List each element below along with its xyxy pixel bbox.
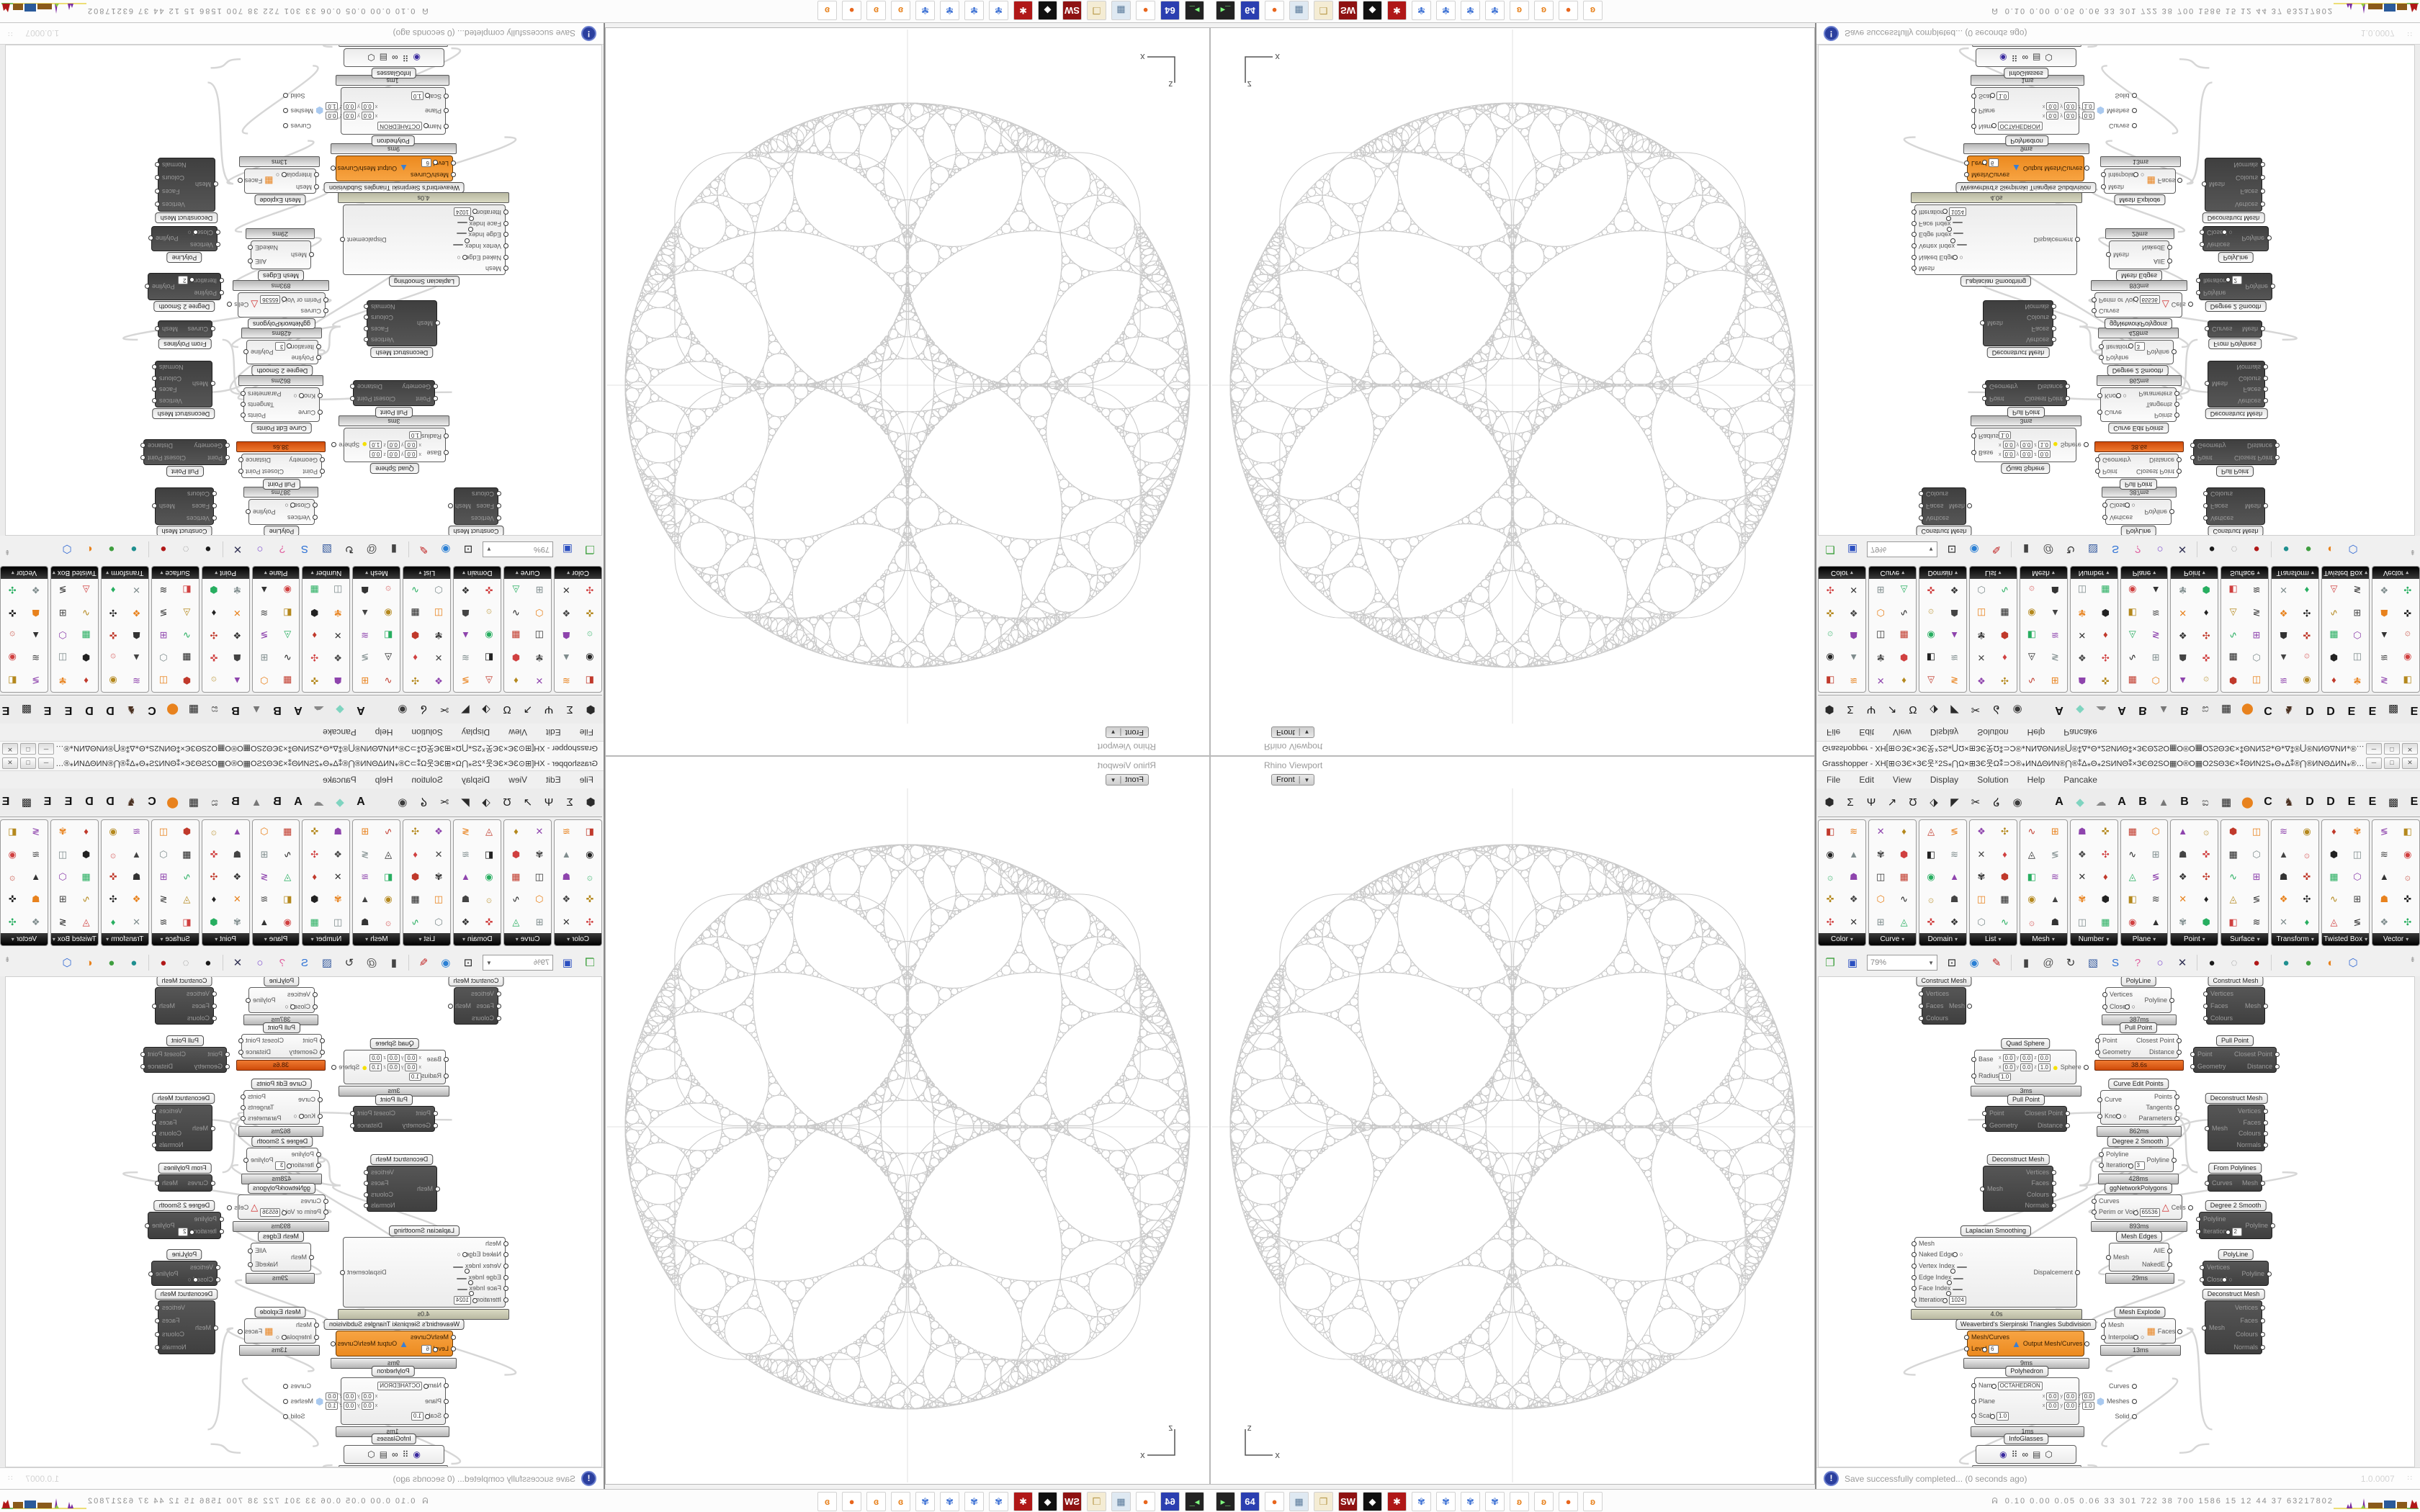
- component-icon[interactable]: ✕: [1850, 917, 1857, 927]
- output-pin-polyline[interactable]: Polyline: [156, 1270, 179, 1277]
- terminal-icon[interactable]: ▸_: [1216, 1, 1235, 20]
- component-icon[interactable]: ✣: [2202, 631, 2210, 640]
- sketch-icon[interactable]: ▮: [2018, 541, 2034, 557]
- output-pin-faces[interactable]: Faces: [2031, 1179, 2049, 1187]
- component-icon[interactable]: ◫: [2252, 827, 2261, 836]
- mesh-tab-icon[interactable]: ◤: [460, 796, 471, 809]
- output-pin-distance[interactable]: Distance: [148, 1063, 173, 1070]
- menu-view[interactable]: View: [1893, 727, 1912, 737]
- blender-icon[interactable]: ʚ: [817, 1, 837, 20]
- component-mesh-edges[interactable]: Mesh AllENakedE: [2109, 240, 2169, 269]
- component-icon[interactable]: ∿: [2001, 917, 2009, 927]
- component-icon[interactable]: ∿: [2330, 608, 2338, 618]
- output-pin-normals[interactable]: Normals: [159, 364, 184, 371]
- param-value-box[interactable]: 3: [2135, 1161, 2145, 1170]
- mesh-tab-icon[interactable]: ◤: [1949, 703, 1960, 716]
- firefox-icon[interactable]: ●: [1265, 1, 1284, 20]
- palette-label[interactable]: Number▾: [2071, 567, 2117, 579]
- component-icon[interactable]: ☗: [1950, 608, 1959, 618]
- curve-tab-icon[interactable]: Ʊ: [501, 796, 513, 809]
- component-icon[interactable]: ✜: [1827, 894, 1834, 904]
- input-pin-mesh[interactable]: Mesh: [485, 1240, 501, 1247]
- component-pull-point[interactable]: Point Geometry Closest PointDistance: [2193, 1047, 2277, 1073]
- component-icon[interactable]: ⬢: [183, 827, 191, 836]
- boolean-toggle-icon[interactable]: ○: [457, 254, 460, 261]
- component-icon[interactable]: ۞: [2203, 676, 2209, 685]
- component-deconstruct-mesh[interactable]: Mesh VerticesFacesColoursNormals: [2205, 158, 2262, 212]
- component-icon[interactable]: ◉: [485, 872, 493, 881]
- blender-icon[interactable]: ʚ: [866, 1492, 886, 1511]
- palette-label[interactable]: Number▾: [302, 933, 349, 945]
- grasshopper-canvas[interactable]: Construct MeshVertices Faces Colours Mes…: [4, 976, 602, 1467]
- output-pin-mesh[interactable]: Mesh: [159, 503, 175, 510]
- chevron-down-icon[interactable]: ▾: [567, 936, 570, 942]
- output-pin-vertices[interactable]: Vertices: [2026, 1169, 2049, 1176]
- tab-letter-E[interactable]: E: [2367, 796, 2378, 809]
- component-pull-point[interactable]: Point Geometry Closest PointDistance: [241, 1034, 322, 1058]
- statusbar-grip[interactable]: ∷: [2408, 30, 2413, 37]
- gem-tab-icon[interactable]: ◆: [334, 703, 346, 716]
- rhino-viewport[interactable]: Rhino Viewport Front | ▼ z x: [605, 27, 1210, 756]
- close-button[interactable]: ✕: [2, 743, 18, 755]
- input-pin-curve[interactable]: Curve: [298, 1096, 315, 1103]
- component-icon[interactable]: ☗: [32, 608, 40, 618]
- component-icon[interactable]: ◫: [2078, 585, 2087, 595]
- component-icon[interactable]: ◉: [2403, 653, 2411, 662]
- component-icon[interactable]: ◫: [434, 894, 443, 904]
- maximize-button[interactable]: □: [20, 757, 36, 769]
- chevron-down-icon[interactable]: ▾: [1901, 570, 1904, 576]
- output-pin-output-mesh-curves[interactable]: Output Mesh/Curves: [338, 1340, 398, 1347]
- component-icon[interactable]: ◬: [83, 917, 90, 927]
- component-icon[interactable]: ❖: [333, 850, 342, 859]
- component-icon[interactable]: ۞: [2029, 585, 2035, 595]
- component-icon[interactable]: ✾: [233, 917, 241, 927]
- output-pin-curves[interactable]: Curves: [290, 1382, 311, 1390]
- dna-icon[interactable]: ✕: [2174, 955, 2190, 971]
- component-icon[interactable]: ✾: [334, 608, 342, 618]
- component-icon[interactable]: ⊞: [1877, 917, 1885, 927]
- component-icon[interactable]: ⊞: [2051, 827, 2059, 836]
- viewport-tab-front[interactable]: Front | ▼: [1106, 726, 1149, 738]
- component-icon[interactable]: ◉: [1827, 850, 1834, 859]
- input-pin-face-index[interactable]: Face Index: [1919, 220, 1963, 228]
- xyz-value-box[interactable]: 1.0: [2082, 102, 2094, 110]
- component-icon[interactable]: ◉: [2027, 894, 2035, 904]
- component-icon[interactable]: ◉: [9, 850, 17, 859]
- output-pin-points[interactable]: Points: [248, 412, 266, 419]
- component-icon[interactable]: ۞: [110, 653, 116, 662]
- input-pin-polyline[interactable]: Polyline: [194, 290, 217, 297]
- component-icon[interactable]: ⬡: [1977, 585, 1985, 595]
- component-icon[interactable]: ☗: [562, 631, 570, 640]
- component-icon[interactable]: ✜: [2202, 653, 2210, 662]
- blender-icon[interactable]: ʚ: [866, 1, 886, 20]
- component-laplacian-smoothing[interactable]: Mesh Naked Edges ○Vertex Index Edge Inde…: [343, 1237, 506, 1308]
- component-icon[interactable]: ♦: [2103, 631, 2108, 640]
- param-value-box[interactable]: 1.0: [1996, 1412, 2009, 1421]
- chevron-down-icon[interactable]: ▾: [2406, 570, 2408, 576]
- component-weaverbird-s-sierpinski-triangles-subdivision[interactable]: Mesh/Curves Level 6▲Output Mesh/Curves: [336, 156, 453, 181]
- paint-icon[interactable]: ✾: [915, 1, 935, 20]
- output-pin-normals[interactable]: Normals: [162, 1344, 187, 1351]
- component-icon[interactable]: ✜: [310, 676, 318, 685]
- chevron-down-icon[interactable]: ▾: [1999, 936, 2002, 942]
- blob-outline-icon[interactable]: ⬡: [59, 955, 75, 971]
- component-icon[interactable]: ◧: [8, 676, 17, 685]
- boolean-toggle-icon[interactable]: ○: [2229, 1276, 2233, 1283]
- boolean-toggle-icon[interactable]: ○: [2141, 1333, 2144, 1341]
- screenshot-icon[interactable]: ▧: [319, 955, 335, 971]
- component-infoglasses[interactable]: ◉⠿∞▤⬡: [344, 48, 444, 67]
- chevron-down-icon[interactable]: ▼: [1304, 729, 1310, 736]
- component-icon[interactable]: ❖: [1850, 608, 1858, 618]
- component-icon[interactable]: ▲: [259, 585, 269, 595]
- component-icon[interactable]: ∿: [82, 608, 90, 618]
- input-pin-level[interactable]: Level 6: [1971, 158, 1999, 167]
- component-icon[interactable]: ◫: [58, 653, 67, 662]
- output-pin-sphere[interactable]: Sphere: [2061, 1063, 2081, 1071]
- paint-icon[interactable]: ✾: [915, 1492, 935, 1511]
- firefox-icon[interactable]: ●: [1136, 1, 1155, 20]
- input-pin-scale[interactable]: Scale 1.0: [1978, 91, 2009, 100]
- chevron-down-icon[interactable]: ▾: [12, 570, 14, 576]
- input-pin-radius[interactable]: Radius: [1978, 433, 1999, 441]
- component-icon[interactable]: ◫: [159, 676, 168, 685]
- input-pin-scale[interactable]: Scale 1.0: [1978, 1412, 2009, 1421]
- component-icon[interactable]: ♦: [84, 676, 89, 685]
- component-icon[interactable]: ✕: [563, 917, 570, 927]
- xyz-value-box[interactable]: 0.0: [326, 1392, 338, 1400]
- badge-icon[interactable]: ✱: [1013, 1492, 1033, 1511]
- toolbar-overflow-icon[interactable]: ⇟: [4, 548, 10, 556]
- component-icon[interactable]: ▲: [562, 653, 571, 662]
- firefox-icon[interactable]: ●: [1136, 1492, 1155, 1511]
- input-pin-faces[interactable]: Faces: [1926, 1002, 1944, 1009]
- component-icon[interactable]: ◬: [183, 608, 190, 618]
- input-pin-point[interactable]: Point: [416, 396, 431, 403]
- xyz-value-box[interactable]: 0.0: [2064, 1402, 2076, 1410]
- vector-tab-icon[interactable]: ↗: [1886, 796, 1898, 809]
- component-icon[interactable]: ≋: [2152, 894, 2160, 904]
- component-icon[interactable]: ✣: [2001, 827, 2009, 836]
- component-icon[interactable]: ❖: [562, 608, 570, 618]
- output-pin-faces[interactable]: Faces: [371, 1179, 389, 1187]
- maximize-button[interactable]: □: [2384, 743, 2400, 755]
- component-icon[interactable]: ≋: [2380, 850, 2388, 859]
- xyz-value-box[interactable]: 0.0: [362, 112, 374, 120]
- component-icon[interactable]: ▦: [411, 894, 419, 904]
- component-polyhedron[interactable]: Name OCTAHEDRONPlane Scale 1.0x0.0y0.0z0…: [341, 87, 446, 135]
- output-pin-closest-point[interactable]: Closest Point: [246, 468, 284, 475]
- param-value-box[interactable]: 1.0: [411, 91, 423, 100]
- param-value-box[interactable]: OCTAHEDRON: [377, 1382, 422, 1390]
- input-pin-closed[interactable]: Closed ○: [2207, 229, 2233, 236]
- component-icon[interactable]: ✕: [2078, 631, 2086, 640]
- input-pin-curve[interactable]: Curve: [298, 410, 315, 417]
- params-tab-icon[interactable]: ⬢: [1824, 703, 1835, 716]
- input-pin-plane[interactable]: Plane: [425, 1398, 442, 1405]
- component-icon[interactable]: ⊞: [2253, 872, 2261, 881]
- chevron-down-icon[interactable]: ▾: [1850, 936, 1853, 942]
- chevron-down-icon[interactable]: ▾: [365, 570, 368, 576]
- output-pin-colours[interactable]: Colours: [371, 1191, 393, 1198]
- palette-label[interactable]: Point▾: [2171, 933, 2218, 945]
- component-icon[interactable]: ✕: [535, 676, 543, 685]
- component-ggnetworkpolygons[interactable]: Curves Perim or Void 65536△Cells: [2094, 292, 2182, 318]
- component-icon[interactable]: ▦: [2329, 631, 2338, 640]
- component-icon[interactable]: ✾: [1978, 631, 1986, 640]
- component-icon[interactable]: ◉: [1927, 631, 1935, 640]
- mesh-tab-icon[interactable]: ◤: [1949, 796, 1960, 809]
- xyz-value-box[interactable]: 0.0: [2020, 1054, 2033, 1062]
- input-pin-point[interactable]: Point: [1989, 1110, 2004, 1117]
- terminal-icon[interactable]: ▸_: [1185, 1, 1204, 20]
- input-pin-mesh[interactable]: Mesh: [2108, 1321, 2124, 1328]
- component-icon[interactable]: ✜: [2202, 850, 2210, 859]
- component-icon[interactable]: ♦: [212, 894, 217, 904]
- component-icon[interactable]: ⬡: [535, 894, 543, 904]
- input-pin-vertex-index[interactable]: Vertex Index: [453, 243, 501, 250]
- palette-label[interactable]: Plane▾: [253, 567, 300, 579]
- display-tab-icon[interactable]: ◉: [397, 796, 408, 809]
- component-icon[interactable]: ≋: [133, 676, 140, 685]
- component-icon[interactable]: ◧: [586, 676, 594, 685]
- component-icon[interactable]: ☗: [32, 894, 40, 904]
- input-pin-knots[interactable]: Knots ○: [293, 393, 315, 400]
- component-icon[interactable]: ◫: [2078, 917, 2087, 927]
- xyz-value-box[interactable]: 0.0: [387, 441, 400, 449]
- input-pin-mesh[interactable]: Mesh: [2108, 184, 2124, 191]
- component-icon[interactable]: ▲: [2279, 653, 2288, 662]
- checker-tab-icon[interactable]: ▩: [21, 703, 32, 716]
- dark-app-icon[interactable]: ◆: [1038, 1492, 1057, 1511]
- menu-solution[interactable]: Solution: [1977, 775, 2008, 785]
- component-icon[interactable]: ✣: [1827, 917, 1834, 927]
- menu-solution[interactable]: Solution: [411, 727, 442, 737]
- input-pin-name[interactable]: Name OCTAHEDRON: [377, 122, 442, 130]
- input-pin-base[interactable]: Base: [1978, 1056, 1994, 1063]
- input-pin-itterations[interactable]: Itterations 1024: [1919, 207, 1966, 216]
- component-icon[interactable]: ⬡: [2152, 827, 2160, 836]
- component-polyline[interactable]: Vertices Closed ○Polyline: [2105, 987, 2172, 1013]
- input-pin-mesh[interactable]: Mesh: [296, 1321, 312, 1328]
- component-icon[interactable]: ✕: [2280, 917, 2287, 927]
- output-pin-meshes[interactable]: Meshes: [2107, 107, 2130, 114]
- component-construct-mesh[interactable]: Vertices Faces Colours Mesh: [454, 487, 498, 525]
- input-pin-geometry[interactable]: Geometry: [2197, 443, 2226, 450]
- output-pin-solid[interactable]: Solid: [290, 1413, 305, 1420]
- gha-icon[interactable]: ↻: [341, 955, 357, 971]
- component-icon[interactable]: ♦: [1901, 676, 1906, 685]
- menu-solution[interactable]: Solution: [411, 775, 442, 785]
- output-pin-normals[interactable]: Normals: [159, 1141, 184, 1148]
- sketch-icon[interactable]: ▮: [2018, 955, 2034, 971]
- component-icon[interactable]: ♦: [111, 917, 116, 927]
- component-icon[interactable]: ☗: [2078, 676, 2087, 685]
- chevron-down-icon[interactable]: ▼: [1304, 777, 1310, 783]
- component-icon[interactable]: ▦: [1899, 872, 1908, 881]
- param-value-box[interactable]: 65536: [260, 295, 280, 304]
- input-pin-level[interactable]: Level 6: [1971, 1345, 1999, 1354]
- component-icon[interactable]: ✾: [59, 676, 67, 685]
- output-pin-polyline[interactable]: Polyline: [251, 1156, 274, 1164]
- component-icon[interactable]: ◬: [1927, 827, 1935, 836]
- component-icon[interactable]: ⬢: [411, 631, 419, 640]
- surface-tab-icon[interactable]: ⬗: [1928, 703, 1940, 716]
- mountain-tab-icon[interactable]: ▲: [251, 796, 262, 809]
- component-icon[interactable]: ⊞: [361, 676, 369, 685]
- firefox-icon[interactable]: ●: [1265, 1492, 1284, 1511]
- param-value-box[interactable]: 2: [2232, 1228, 2242, 1236]
- palette-label[interactable]: List▾: [403, 933, 450, 945]
- component-icon[interactable]: ◬: [1927, 676, 1935, 685]
- find-icon[interactable]: S: [2107, 955, 2123, 971]
- input-pin-closed[interactable]: Closed ○: [2207, 1276, 2233, 1283]
- component-icon[interactable]: ♦: [2204, 608, 2209, 618]
- output-pin-colours[interactable]: Colours: [162, 174, 184, 181]
- tab-letter-A[interactable]: A: [2053, 703, 2065, 716]
- component-icon[interactable]: ✕: [1978, 850, 1986, 859]
- paint-icon[interactable]: ✾: [1412, 1, 1431, 20]
- component-icon[interactable]: ▲: [1950, 631, 1959, 640]
- file-manager-icon[interactable]: ❒: [1087, 1492, 1106, 1511]
- palette-label[interactable]: Number▾: [2071, 933, 2117, 945]
- badge-icon[interactable]: ✱: [1013, 1, 1033, 20]
- viewport-canvas[interactable]: [607, 788, 1208, 1482]
- component-icon[interactable]: ✣: [109, 608, 117, 618]
- component-mesh-explode[interactable]: Mesh Interpolate ○▦Faces: [2104, 168, 2176, 194]
- output-pin-vertices[interactable]: Vertices: [2235, 1304, 2258, 1311]
- tab-letter-B[interactable]: B: [2179, 796, 2190, 809]
- preview-black-icon[interactable]: ●: [200, 541, 216, 557]
- tab-letter-E[interactable]: E: [2367, 703, 2378, 716]
- boolean-toggle-icon[interactable]: ○: [276, 1333, 279, 1341]
- component-icon[interactable]: ⬡: [535, 608, 543, 618]
- component-icon[interactable]: ≋: [2253, 917, 2261, 927]
- output-pin-normals[interactable]: Normals: [162, 161, 187, 168]
- component-icon[interactable]: ∿: [2128, 653, 2136, 662]
- component-icon[interactable]: ✣: [310, 653, 318, 662]
- component-icon[interactable]: ✜: [1927, 585, 1935, 595]
- component-icon[interactable]: ⬢: [210, 585, 218, 595]
- component-icon[interactable]: ✣: [1827, 585, 1834, 595]
- input-pin-colours[interactable]: Colours: [472, 490, 494, 498]
- component-icon[interactable]: ⬡: [2152, 676, 2160, 685]
- xyz-value-box[interactable]: 0.0: [405, 1063, 417, 1071]
- tab-letter-D[interactable]: D: [2325, 703, 2336, 716]
- sets-tab-icon[interactable]: Ψ: [543, 796, 555, 809]
- component-icon[interactable]: ≋: [462, 850, 470, 859]
- grasshopper-canvas[interactable]: Construct MeshVertices Faces Colours Mes…: [1818, 976, 2416, 1467]
- component-icon[interactable]: ≋: [563, 827, 570, 836]
- component-deconstruct-mesh[interactable]: Mesh VerticesFacesColoursNormals: [2205, 1300, 2262, 1354]
- file-manager-icon[interactable]: ❒: [1314, 1, 1333, 20]
- save-file-icon[interactable]: ▣: [1845, 955, 1860, 971]
- component-ggnetworkpolygons[interactable]: Curves Perim or Void 65536△Cells: [238, 292, 326, 318]
- component-from-polylines[interactable]: Curves Mesh: [158, 1174, 212, 1192]
- input-pin-mesh[interactable]: Mesh: [1987, 320, 2003, 327]
- palette-label[interactable]: Twisted Box▾: [2322, 933, 2369, 945]
- component-icon[interactable]: ▲: [31, 631, 40, 640]
- at-icon[interactable]: @: [364, 955, 380, 971]
- component-icon[interactable]: ⬡: [260, 676, 268, 685]
- tab-letter-E[interactable]: E: [0, 703, 12, 716]
- component-icon[interactable]: ✜: [9, 894, 17, 904]
- component-icon[interactable]: ✕: [435, 850, 443, 859]
- output-pin-mesh[interactable]: Mesh: [2242, 325, 2258, 333]
- paint-icon[interactable]: ✾: [1461, 1, 1480, 20]
- output-pin-faces[interactable]: Faces: [2240, 188, 2258, 195]
- component-icon[interactable]: ⬡: [2252, 850, 2260, 859]
- input-pin-interpolate[interactable]: Interpolate ○: [2108, 1333, 2144, 1341]
- component-icon[interactable]: ≶: [2051, 850, 2059, 859]
- xyz-value-box[interactable]: 0.0: [2003, 451, 2015, 459]
- component-icon[interactable]: ◬: [2129, 872, 2136, 881]
- component-icon[interactable]: ✕: [2280, 585, 2287, 595]
- component-icon[interactable]: ∿: [411, 585, 419, 595]
- package-icon[interactable]: ?: [274, 955, 290, 971]
- component-degree-2-smooth[interactable]: Polyline Iterations 3Polyline: [246, 340, 318, 364]
- component-icon[interactable]: ◧: [2027, 872, 2036, 881]
- minimize-button[interactable]: ─: [2366, 757, 2382, 769]
- component-icon[interactable]: ≶: [32, 827, 40, 836]
- grid-tab-icon[interactable]: ▦: [188, 703, 200, 716]
- input-pin-plane[interactable]: Plane: [425, 107, 442, 114]
- output-pin-cells[interactable]: Cells: [234, 1204, 248, 1211]
- tab-letter-A[interactable]: A: [292, 796, 304, 809]
- input-pin-perim-or-void[interactable]: Perim or Void 65536: [260, 1208, 321, 1217]
- sets-tab-icon[interactable]: Ψ: [543, 704, 555, 716]
- component-icon[interactable]: ☗: [1850, 872, 1858, 881]
- input-pin-iterations[interactable]: Iterations 3: [2106, 1161, 2145, 1170]
- chevron-down-icon[interactable]: ▾: [2311, 570, 2314, 576]
- blender-icon[interactable]: ʚ: [1534, 1492, 1554, 1511]
- maths-tab-icon[interactable]: Σ: [1845, 704, 1856, 716]
- chevron-down-icon[interactable]: ▾: [2202, 570, 2205, 576]
- component-icon[interactable]: ◧: [485, 653, 493, 662]
- input-pin-vertices[interactable]: Vertices: [2207, 1264, 2230, 1271]
- curve-tab-icon[interactable]: Ʊ: [1907, 704, 1919, 716]
- input-pin-vertices[interactable]: Vertices: [1926, 515, 1949, 522]
- component-infoglasses[interactable]: ◉⠿∞▤⬡: [1976, 48, 2076, 67]
- component-degree-2-smooth[interactable]: Polyline Iterations 2Polyline: [2199, 273, 2272, 300]
- tab-letter-B[interactable]: B: [230, 703, 241, 716]
- surface-tab-icon[interactable]: ⬗: [480, 703, 492, 716]
- component-icon[interactable]: ☗: [2051, 585, 2060, 595]
- component-icon[interactable]: ≋: [1850, 676, 1857, 685]
- gem-tab-icon[interactable]: ◆: [2074, 703, 2086, 716]
- input-pin-mesh-curves[interactable]: Mesh/Curves: [411, 171, 449, 179]
- input-pin-geometry[interactable]: Geometry: [289, 1048, 318, 1056]
- output-pin-tangents[interactable]: Tangents: [2146, 1104, 2172, 1111]
- preview-wire-icon[interactable]: ◌: [2226, 955, 2242, 971]
- output-pin-tangents[interactable]: Tangents: [248, 1104, 274, 1111]
- zoom-extents-icon[interactable]: ⊡: [1944, 955, 1960, 971]
- component-icon[interactable]: ⬢: [411, 872, 419, 881]
- input-pin-mesh-curves[interactable]: Mesh/Curves: [1971, 171, 2009, 179]
- output-pin-curves[interactable]: Curves: [290, 122, 311, 130]
- component-icon[interactable]: ◉: [109, 827, 117, 836]
- screenshot-icon[interactable]: ▧: [2085, 541, 2101, 557]
- chevron-down-icon[interactable]: ▾: [215, 936, 218, 942]
- input-pin-interpolate[interactable]: Interpolate ○: [276, 1333, 312, 1341]
- tab-letter-B[interactable]: B: [230, 796, 241, 809]
- tab-letter-A[interactable]: A: [355, 703, 367, 716]
- tab-letter-B[interactable]: B: [2179, 703, 2190, 716]
- output-pin-alle[interactable]: AllE: [2154, 1247, 2165, 1254]
- component-icon[interactable]: ◉: [2128, 917, 2136, 927]
